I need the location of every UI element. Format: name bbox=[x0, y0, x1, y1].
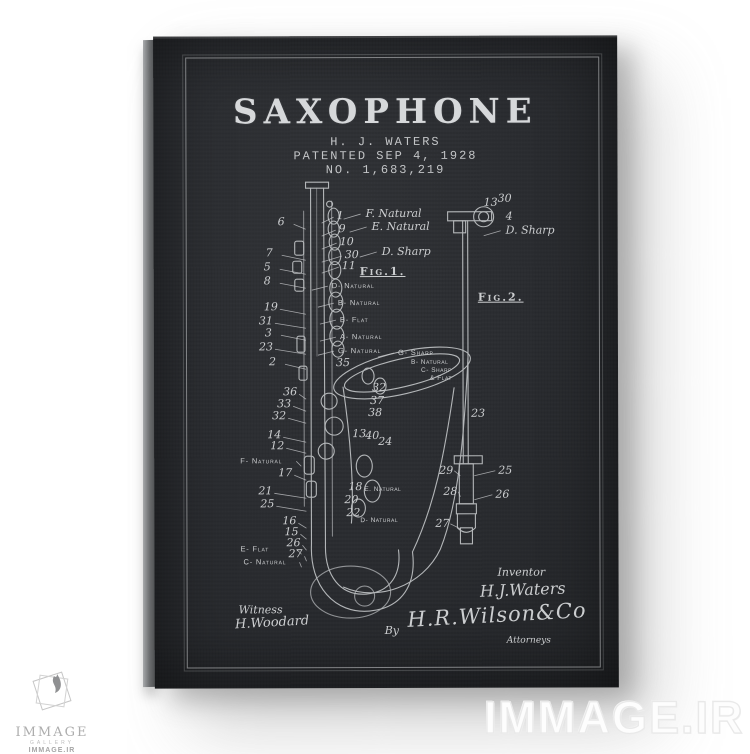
callout-lr: B- Natural bbox=[338, 298, 380, 307]
callout-layer: 6758193132323633321412F- Natural17212516… bbox=[153, 35, 619, 688]
callout-sm: D- Natural bbox=[360, 517, 398, 524]
logo-diamond-flame-icon bbox=[23, 664, 81, 720]
watermark-text: IMMAGE.IR bbox=[484, 692, 745, 744]
callout-nl: 19 bbox=[264, 300, 278, 313]
callout-lr: D- Natural bbox=[332, 281, 375, 290]
callout-f2l: 28 bbox=[443, 485, 457, 498]
callout-nl: 2 bbox=[269, 355, 276, 368]
callout-nr: 9 bbox=[339, 222, 346, 235]
callout-nl: 5 bbox=[264, 260, 271, 273]
callout-lr-i: D. Sharp bbox=[382, 245, 431, 258]
callout-n: 22 bbox=[346, 506, 360, 519]
callout-f2r: 26 bbox=[495, 488, 509, 501]
immage-logo: IMMAGE GALLERY IMMAGE.IR bbox=[14, 664, 90, 754]
callout-lr: A- Natural bbox=[340, 332, 382, 341]
callout-sm: & Flat bbox=[430, 375, 452, 382]
callout-fig: Fig.2. bbox=[478, 291, 524, 304]
callout-n: 32 bbox=[372, 381, 386, 394]
callout-nr: 1 bbox=[337, 209, 344, 222]
callout-lr-i: F. Natural bbox=[366, 207, 422, 220]
callout-f2l: 27 bbox=[435, 517, 449, 530]
callout-nl: 17 bbox=[278, 466, 292, 479]
callout-nl: 25 bbox=[260, 497, 274, 510]
callout-n: 40 bbox=[365, 429, 379, 442]
callout-f2r: 25 bbox=[498, 464, 512, 477]
callout-n: 24 bbox=[378, 435, 392, 448]
callout-nl: 27 bbox=[288, 547, 302, 560]
callout-lr-i: D. Sharp bbox=[506, 224, 555, 237]
callout-sm: E. Natural bbox=[364, 486, 401, 493]
callout-nl: 8 bbox=[264, 274, 271, 287]
callout-f2l: 29 bbox=[439, 464, 453, 477]
callout-nl: 3 bbox=[265, 326, 272, 339]
callout-nl: 12 bbox=[270, 439, 284, 452]
callout-nr: 11 bbox=[342, 259, 356, 272]
callout-n: 23 bbox=[471, 407, 485, 420]
callout-nl: 7 bbox=[266, 246, 273, 259]
callout-nr: 10 bbox=[340, 235, 354, 248]
logo-subtitle: GALLERY bbox=[14, 740, 90, 746]
callout-sig-sm: Inventor bbox=[498, 566, 546, 579]
callout-sig-lg: H.J.Waters bbox=[480, 579, 566, 601]
callout-n: 18 bbox=[348, 480, 362, 493]
callout-fig: Fig.1. bbox=[360, 265, 406, 278]
callout-lr: G- Natural bbox=[338, 346, 381, 355]
callout-sm: C- Sharp bbox=[421, 367, 452, 374]
callout-ll: C- Natural bbox=[244, 557, 287, 566]
logo-name: IMMAGE bbox=[14, 725, 90, 740]
callout-ll: F- Natural bbox=[240, 456, 282, 465]
callout-nl: 21 bbox=[258, 484, 272, 497]
callout-nl: 23 bbox=[259, 340, 273, 353]
callout-sig-sm: By bbox=[385, 624, 399, 637]
callout-nl: 32 bbox=[272, 409, 286, 422]
callout-lr: G- Sharp bbox=[398, 348, 434, 357]
callout-n: 38 bbox=[368, 406, 382, 419]
callout-sm: B- Natural bbox=[411, 359, 448, 366]
callout-n: 4 bbox=[506, 210, 513, 223]
callout-lr-i: E. Natural bbox=[372, 220, 430, 233]
logo-site: IMMAGE.IR bbox=[14, 747, 90, 754]
canvas-print: SAXOPHONE H. J. WATERS PATENTED SEP 4, 1… bbox=[153, 35, 619, 688]
callout-n: 13 bbox=[484, 196, 498, 209]
callout-n: 35 bbox=[336, 356, 350, 369]
callout-lr: B- Flat bbox=[340, 315, 369, 324]
callout-n: 20 bbox=[344, 493, 358, 506]
callout-ll: E- Flat bbox=[240, 544, 269, 553]
callout-n: 13 bbox=[352, 427, 366, 440]
callout-n: 30 bbox=[498, 192, 512, 205]
callout-sig-xs: Attorneys bbox=[507, 636, 551, 646]
callout-nl: 6 bbox=[278, 215, 285, 228]
